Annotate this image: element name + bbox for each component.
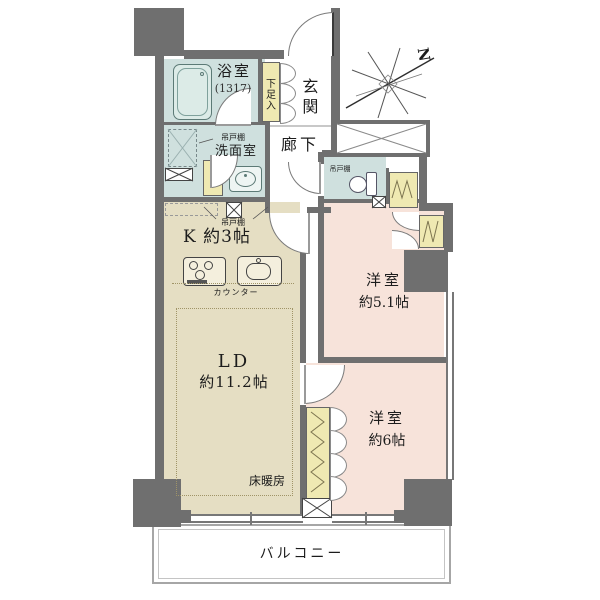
floor-plan: N 浴室 (1317) 下足入 玄関 廊下 吊戸棚 洗面室 吊戸棚 吊戸棚 K … — [0, 0, 600, 600]
kitchen-dotted-line — [172, 283, 294, 285]
bathtub-drain — [200, 72, 204, 76]
hallway-label: 廊下 — [272, 136, 328, 154]
shoe-cabinet-door — [280, 83, 296, 104]
toilet-door-arc — [288, 162, 321, 194]
washer-pan-cross — [168, 129, 197, 167]
bedroom1-label: 洋室 — [351, 272, 417, 289]
floor-heating-label: 床暖房 — [238, 475, 296, 489]
washroom-cupboard-label: 吊戸棚 — [212, 133, 254, 142]
toilet-bowl — [349, 176, 367, 193]
living-label: LD — [203, 352, 265, 373]
bedroom2-size-label: 約6帖 — [352, 433, 422, 449]
balcony-label: バルコニー — [238, 546, 366, 562]
wall-washroom-right — [265, 122, 270, 213]
toilet-ps-cross — [372, 196, 386, 208]
bathroom-label: 浴室 — [208, 63, 260, 80]
wall-bedroom-divider — [318, 357, 446, 363]
wall-bedroom1-left — [318, 196, 324, 363]
bedroom1-size-label: 約5.1帖 — [341, 295, 427, 311]
pillar-top-left — [134, 8, 184, 56]
bottom-ps-cross — [302, 498, 332, 518]
shoe-cabinet-door — [280, 63, 296, 84]
stove-burner — [195, 270, 205, 280]
window-bedroom2 — [332, 514, 394, 523]
window-side — [446, 292, 454, 480]
kitchen-cupboard-label: 吊戸棚 — [213, 218, 253, 227]
bathroom-size-label: (1317) — [207, 83, 259, 96]
washroom-side-box-cross — [165, 168, 193, 181]
kitchen-sink-faucet — [256, 258, 261, 263]
wall-nub-right — [394, 510, 404, 523]
wall-top — [184, 50, 284, 59]
wall-left — [155, 50, 164, 480]
meter-box-cross — [337, 124, 426, 153]
wall-nub-left — [181, 510, 191, 523]
wall-washroom-bottom — [164, 197, 268, 202]
window-living — [191, 514, 303, 523]
shoe-cabinet-door — [280, 103, 296, 124]
bedroom2-label: 洋室 — [354, 410, 420, 427]
hanger-pipe-icon — [421, 218, 442, 245]
floor-heating-boundary — [176, 308, 293, 496]
washroom-label: 洗面室 — [208, 145, 264, 160]
hanger-pipe-icon — [391, 176, 416, 204]
pillar-bottom-right — [404, 479, 452, 526]
window-mullion — [365, 512, 367, 525]
stove-burner — [204, 261, 213, 270]
toilet-cupboard-label: 吊戸棚 — [326, 165, 354, 173]
counter-label: カウンター — [208, 288, 264, 297]
shoe-box-label: 下足入 — [263, 68, 275, 120]
entrance-door-arc — [288, 12, 334, 56]
stove-burner — [189, 261, 198, 270]
entrance-label: 玄関 — [299, 70, 317, 126]
window-mullion — [250, 512, 252, 525]
pillar-bottom-left — [133, 479, 181, 527]
compass-north-label: N — [413, 44, 433, 65]
vanity-faucet — [244, 174, 247, 177]
wall-toilet-right — [419, 155, 427, 207]
toilet-tank — [366, 172, 377, 196]
kitchen-sink-basin — [246, 263, 271, 280]
living-size-label: 約11.2帖 — [183, 374, 285, 391]
kitchen-label: K 約3帖 — [170, 228, 264, 248]
hanger-pipe-icon — [308, 410, 328, 496]
